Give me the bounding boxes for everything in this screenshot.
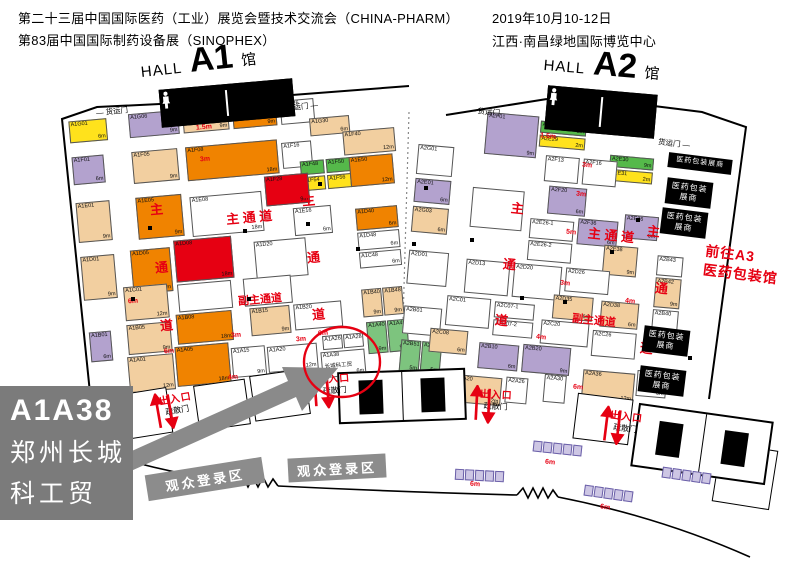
callout-company-line1: 郑州长城 [10,433,133,469]
booth-highlight-circle [304,327,380,397]
callout-company-line2: 科工贸 [10,474,133,510]
callout-booth-code: A1A38 [10,394,133,428]
floorplan-page: 第二十三届中国国际医药（工业）展览会暨技术交流会（CHINA-PHARM） 第8… [0,0,800,565]
exhibitor-callout: A1A38 郑州长城 科工贸 [0,386,133,520]
